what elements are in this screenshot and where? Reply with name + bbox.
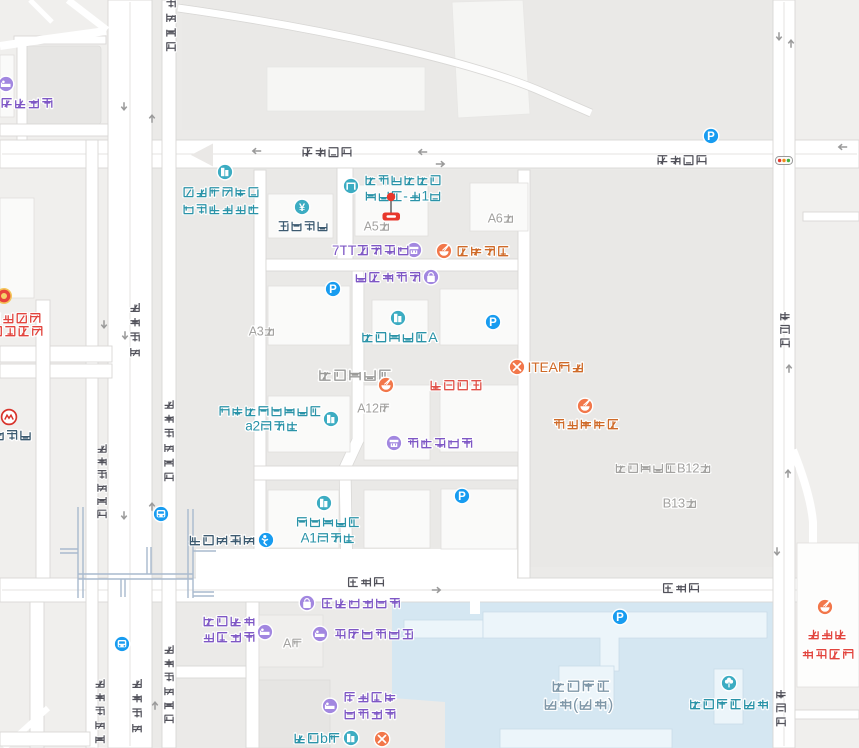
- svg-text:A: A: [428, 330, 438, 346]
- svg-text:3: 3: [678, 496, 685, 511]
- svg-text:1: 1: [309, 531, 317, 546]
- svg-text:2: 2: [253, 419, 261, 434]
- svg-text:P: P: [458, 491, 466, 503]
- svg-text:2: 2: [372, 401, 379, 415]
- svg-text:¥: ¥: [299, 202, 306, 214]
- svg-text:5: 5: [372, 219, 379, 233]
- svg-text:1: 1: [422, 189, 430, 204]
- svg-text:P: P: [329, 284, 337, 296]
- svg-text:-: -: [403, 189, 408, 204]
- svg-text:A: A: [549, 360, 559, 376]
- svg-text:(: (: [573, 696, 579, 713]
- svg-text:T: T: [348, 243, 357, 259]
- svg-text:3: 3: [257, 324, 264, 338]
- svg-text:b: b: [320, 731, 328, 747]
- svg-text:A: A: [283, 636, 292, 650]
- svg-text:2: 2: [692, 461, 699, 476]
- svg-text:P: P: [616, 612, 624, 624]
- svg-text:P: P: [489, 317, 497, 329]
- svg-text:6: 6: [496, 211, 503, 225]
- svg-text:P: P: [707, 131, 715, 143]
- svg-text:): ): [608, 696, 613, 713]
